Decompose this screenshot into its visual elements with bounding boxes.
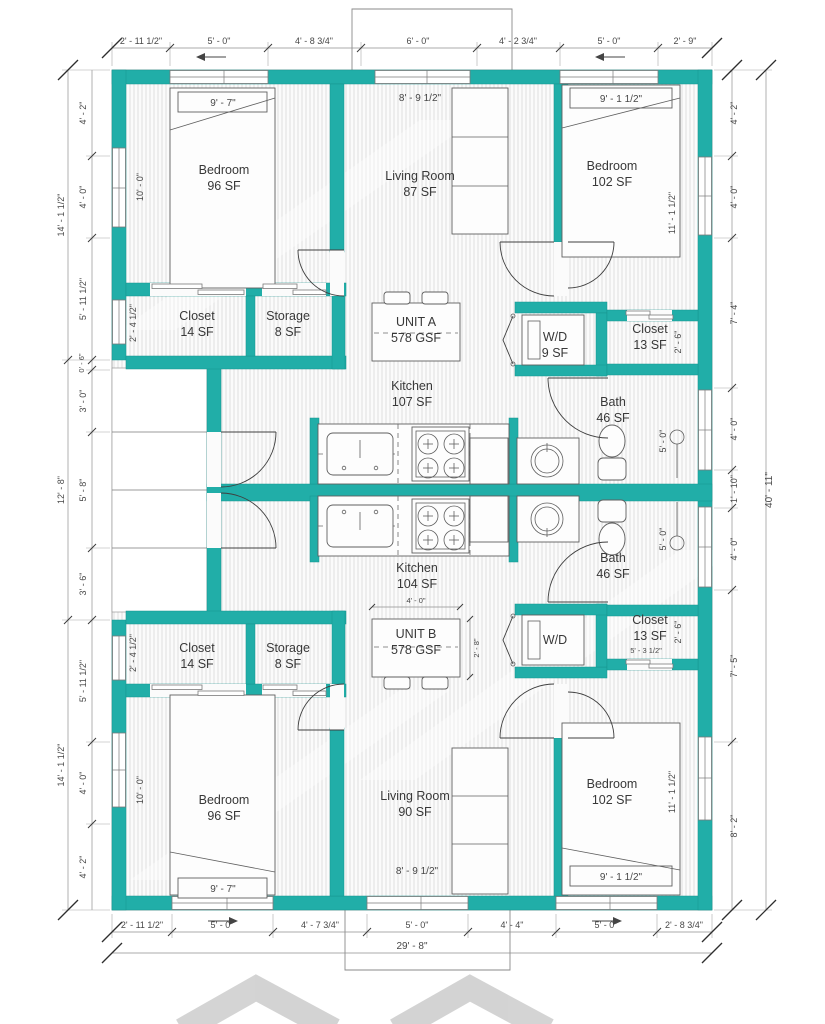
room-storage-a-area: 8 SF: [275, 325, 302, 339]
room-kitchen-b-name: Kitchen: [396, 561, 438, 575]
room-bedroom-a-left-area: 96 SF: [207, 179, 241, 193]
dim-bottom-2: 4' - 7 3/4": [301, 920, 339, 930]
room-bedroom-b-right-area: 102 SF: [592, 793, 633, 807]
window-bottom-center: [367, 897, 468, 910]
window-right-bedroom-b: [699, 737, 712, 820]
dim-right-inner-7: 8' - 2": [729, 815, 739, 838]
room-closet-a-left-area: 14 SF: [180, 325, 214, 339]
dim-top-5: 5' - 0": [598, 36, 621, 46]
dim-bath-a: 5' - 0": [658, 430, 668, 453]
room-living-b-area: 90 SF: [398, 805, 432, 819]
watermark-chevrons: [182, 988, 548, 1024]
dim-left-inner-2: 5' - 11 1/2": [78, 278, 88, 320]
room-bath-b-area: 46 SF: [596, 567, 630, 581]
bath-sink-a: [517, 438, 579, 484]
dim-left-inner-0: 4' - 2": [78, 102, 88, 125]
dim-left-inner-5: 5' - 8": [78, 479, 88, 502]
arrow-top-left: [196, 53, 226, 61]
dim-top-2: 4' - 8 3/4": [295, 36, 333, 46]
room-living-a-area: 87 SF: [403, 185, 437, 199]
room-unit-b-area: 578 GSF: [391, 643, 441, 657]
room-closet-a-left-name: Closet: [179, 309, 215, 323]
window-left-closet-a: [113, 300, 126, 344]
dim-bedroom-a-left-width: 10' - 0": [135, 173, 145, 201]
room-storage-b-name: Storage: [266, 641, 310, 655]
dim-bottom-0: 2' - 11 1/2": [121, 920, 163, 930]
dim-bath-b: 5' - 0": [658, 528, 668, 551]
kitchen-counter-a: [318, 424, 509, 484]
room-unit-b-name: UNIT B: [396, 627, 437, 641]
room-bedroom-a-left-name: Bedroom: [199, 163, 250, 177]
bed-b-right: [562, 723, 680, 895]
window-left-bedroom-b: [113, 733, 126, 807]
porch-bottom: [345, 910, 510, 970]
porch-top: [352, 9, 512, 70]
window-bottom-left: [172, 897, 273, 910]
dim-closet-b-right-depth: 2' - 6": [673, 621, 683, 644]
room-bedroom-b-left-area: 96 SF: [207, 809, 241, 823]
dim-closet-a-right-depth: 2' - 6": [673, 331, 683, 354]
room-living-b-name: Living Room: [380, 789, 449, 803]
dim-top-3: 6' - 0": [407, 36, 430, 46]
dim-left-inner-6: 3' - 6": [78, 573, 88, 596]
dim-closet-b-width: 5' - 3 1/2": [630, 646, 662, 655]
room-unit-a-name: UNIT A: [396, 315, 437, 329]
window-left-bedroom-a: [113, 148, 126, 227]
dim-bed-b-left: 9' - 7": [210, 884, 236, 895]
window-right-bedroom-a: [699, 157, 712, 235]
arrow-top-right: [595, 53, 625, 61]
room-wd-a-area: 9 SF: [542, 346, 569, 360]
floor-plan: 2' - 11 1/2" 5' - 0" 4' - 8 3/4" 6' - 0"…: [0, 0, 825, 1024]
room-bedroom-b-right-name: Bedroom: [587, 777, 638, 791]
room-kitchen-b-area: 104 SF: [397, 577, 438, 591]
dim-bottom-1: 5' - 0": [211, 920, 234, 930]
window-right-bath-a: [699, 390, 712, 470]
stove-b: [412, 499, 469, 553]
room-kitchen-a-area: 107 SF: [392, 395, 433, 409]
dim-table-b-width: 4' - 0": [406, 596, 425, 605]
dim-left-outer-0: 14' - 1 1/2": [56, 194, 66, 237]
room-closet-a-right-name: Closet: [632, 322, 668, 336]
dim-right-inner-2: 7' - 4": [729, 302, 739, 325]
dim-left-inner-7: 5' - 11 1/2": [78, 660, 88, 702]
window-right-bath-b: [699, 507, 712, 587]
window-top-left: [170, 71, 268, 84]
dim-bed-a-right: 9' - 1 1/2": [600, 94, 643, 105]
sink-a: [327, 433, 393, 475]
room-closet-b-right-area: 13 SF: [633, 629, 667, 643]
room-bath-a-area: 46 SF: [596, 411, 630, 425]
dim-closet-a-left-depth: 2' - 4 1/2": [128, 304, 138, 342]
sofa-b: [452, 748, 508, 894]
sink-b: [327, 505, 393, 547]
dim-right-inner-5: 4' - 0": [729, 538, 739, 561]
room-bedroom-a-right-area: 102 SF: [592, 175, 633, 189]
dim-living-b: 8' - 9 1/2": [396, 866, 439, 877]
dim-right-inner-6: 7' - 5": [729, 655, 739, 678]
room-bath-b-name: Bath: [600, 551, 626, 565]
dim-bed-b-right: 9' - 1 1/2": [600, 872, 643, 883]
dim-top-0: 2' - 11 1/2": [120, 36, 162, 46]
window-top-center: [375, 71, 470, 84]
floor-plan-drawing: 2' - 11 1/2" 5' - 0" 4' - 8 3/4" 6' - 0"…: [0, 0, 825, 1024]
dim-bottom-3: 5' - 0": [406, 920, 429, 930]
room-closet-a-right-area: 13 SF: [633, 338, 667, 352]
room-bedroom-a-right-name: Bedroom: [587, 159, 638, 173]
room-wd-a-name: W/D: [543, 330, 567, 344]
room-wd-b-name: W/D: [543, 633, 567, 647]
kitchen-counter-b: [318, 496, 509, 556]
window-top-right: [560, 71, 658, 84]
dim-left-inner-1: 4' - 0": [78, 186, 88, 209]
entry-recess: [112, 368, 207, 612]
dim-bottom-4: 4' - 4": [501, 920, 524, 930]
dim-bedroom-b-left-width: 10' - 0": [135, 776, 145, 804]
room-bedroom-b-left-name: Bedroom: [199, 793, 250, 807]
room-bath-a-name: Bath: [600, 395, 626, 409]
dim-closet-b-left-depth: 2' - 4 1/2": [128, 634, 138, 672]
dim-living-a: 8' - 9 1/2": [399, 93, 442, 104]
dim-top-1: 5' - 0": [208, 36, 231, 46]
dim-table-b-height: 2' - 8": [472, 638, 481, 657]
dim-bed-a-left: 9' - 7": [210, 98, 236, 109]
dim-right-outer: 40' - 11": [764, 472, 775, 508]
room-storage-b-area: 8 SF: [275, 657, 302, 671]
dim-right-inner-4: 1' - 10": [729, 475, 739, 503]
dim-right-inner-3: 4' - 0": [729, 418, 739, 441]
dim-right-inner-0: 4' - 2": [729, 102, 739, 125]
dim-bedroom-a-right-width: 11' - 1 1/2": [667, 192, 677, 234]
room-closet-b-right-name: Closet: [632, 613, 668, 627]
window-left-closet-b: [113, 636, 126, 680]
room-closet-b-left-area: 14 SF: [180, 657, 214, 671]
dim-left-inner-4: 3' - 0": [78, 390, 88, 413]
dim-bottom-6: 2' - 8 3/4": [665, 920, 703, 930]
dim-bedroom-b-right-width: 11' - 1 1/2": [667, 771, 677, 813]
dim-bottom-5: 5' - 0": [595, 920, 618, 930]
dim-left-outer-2: 14' - 1 1/2": [56, 744, 66, 787]
dim-left-outer-1: 12' - 8": [56, 476, 66, 504]
dim-right-inner-1: 4' - 0": [729, 186, 739, 209]
dim-top-6: 2' - 9": [674, 36, 697, 46]
dim-left-inner-3: 0' - 6": [77, 353, 86, 372]
room-living-a-name: Living Room: [385, 169, 454, 183]
stove-a: [412, 427, 469, 481]
sofa-a: [452, 88, 508, 234]
dim-top-4: 4' - 2 3/4": [499, 36, 537, 46]
room-closet-b-left-name: Closet: [179, 641, 215, 655]
room-kitchen-a-name: Kitchen: [391, 379, 433, 393]
dim-bottom-total: 29' - 8": [396, 941, 427, 952]
dim-left-inner-9: 4' - 2": [78, 856, 88, 879]
dim-left-inner-8: 4' - 0": [78, 772, 88, 795]
room-storage-a-name: Storage: [266, 309, 310, 323]
bath-sink-b: [517, 496, 579, 542]
window-bottom-right: [556, 897, 657, 910]
room-unit-a-area: 578 GSF: [391, 331, 441, 345]
